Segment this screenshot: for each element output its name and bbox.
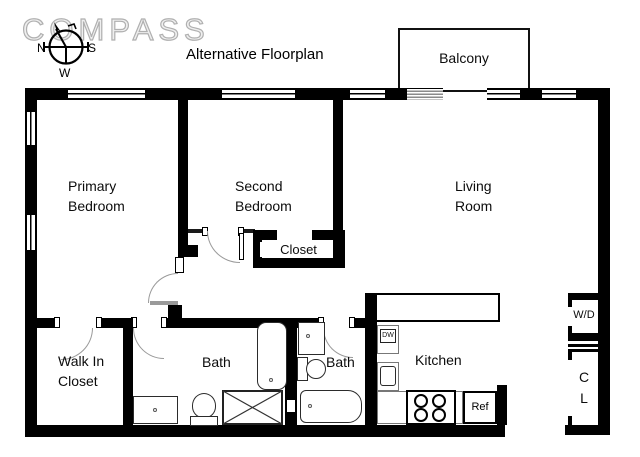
balcony-door-window xyxy=(407,88,443,100)
floorplan: COMPASS Alternative Floorplan N S W Balc… xyxy=(0,0,640,457)
toilet-base xyxy=(190,416,218,426)
second-bedroom-label: Second Bedroom xyxy=(235,176,292,216)
door-jamb xyxy=(349,317,355,328)
walk-in-closet-label: Walk In Closet xyxy=(58,351,104,391)
closet-shelf-line xyxy=(568,349,600,352)
wall xyxy=(178,245,198,257)
closet-wall xyxy=(568,333,600,341)
door-jamb xyxy=(568,326,572,333)
wall xyxy=(497,385,507,425)
wall xyxy=(25,250,37,437)
wall xyxy=(25,425,505,437)
faucet-dot xyxy=(306,334,310,338)
window xyxy=(25,112,37,145)
refrigerator: Ref xyxy=(463,391,497,424)
door-arc xyxy=(148,273,178,303)
toilet xyxy=(306,359,326,379)
door-jamb xyxy=(54,317,60,328)
shower xyxy=(222,390,283,425)
primary-bedroom-label: Primary Bedroom xyxy=(68,176,125,216)
faucet-dot xyxy=(153,408,157,412)
wall xyxy=(25,88,37,112)
bath-2-label: Bath xyxy=(326,352,355,372)
closet-wall xyxy=(253,258,345,268)
window xyxy=(350,88,385,100)
compass-north-label: N xyxy=(37,41,46,55)
hall-closet-label: C L xyxy=(568,367,600,409)
tub-drain xyxy=(269,378,273,382)
door-leaf xyxy=(239,233,244,260)
door-jamb xyxy=(161,317,167,328)
bedroom-divider-wall xyxy=(178,100,188,250)
wall-niche xyxy=(286,399,296,413)
compass-west-label: W xyxy=(59,66,70,80)
closet-wall xyxy=(568,293,600,300)
window xyxy=(25,215,37,250)
window xyxy=(68,88,145,100)
closet-shelf-line xyxy=(568,344,600,347)
living-room-divider-wall xyxy=(333,100,343,268)
balcony-label: Balcony xyxy=(398,50,530,66)
door-jamb xyxy=(96,317,102,328)
dishwasher-label-box: DW xyxy=(380,329,396,343)
wall xyxy=(295,88,350,100)
toilet xyxy=(192,393,216,418)
bath-1-label: Bath xyxy=(202,352,231,372)
window xyxy=(222,88,295,100)
door-jamb xyxy=(568,300,572,307)
closet-label: Closet xyxy=(260,242,337,257)
door-arc xyxy=(133,328,164,359)
window xyxy=(542,88,576,100)
door-jamb xyxy=(568,416,572,425)
door-jamb xyxy=(175,257,184,273)
kitchen-sink-basin xyxy=(380,366,396,386)
washer-dryer-label: W/D xyxy=(568,309,600,321)
stove xyxy=(406,390,456,425)
living-room-label: Living Room xyxy=(455,176,492,216)
door-jamb xyxy=(568,352,572,360)
wall xyxy=(520,88,542,100)
bathroom-vanity xyxy=(298,322,325,355)
window xyxy=(487,88,520,100)
wall xyxy=(25,145,37,215)
door-arc xyxy=(207,231,240,263)
wall xyxy=(385,88,407,100)
tub-drain xyxy=(308,404,312,408)
wall xyxy=(145,88,222,100)
kitchen-label: Kitchen xyxy=(415,350,462,370)
compass-south-label: S xyxy=(88,41,96,55)
kitchen-counter xyxy=(375,293,500,322)
floorplan-title: Alternative Floorplan xyxy=(186,46,324,63)
wall xyxy=(123,318,133,425)
